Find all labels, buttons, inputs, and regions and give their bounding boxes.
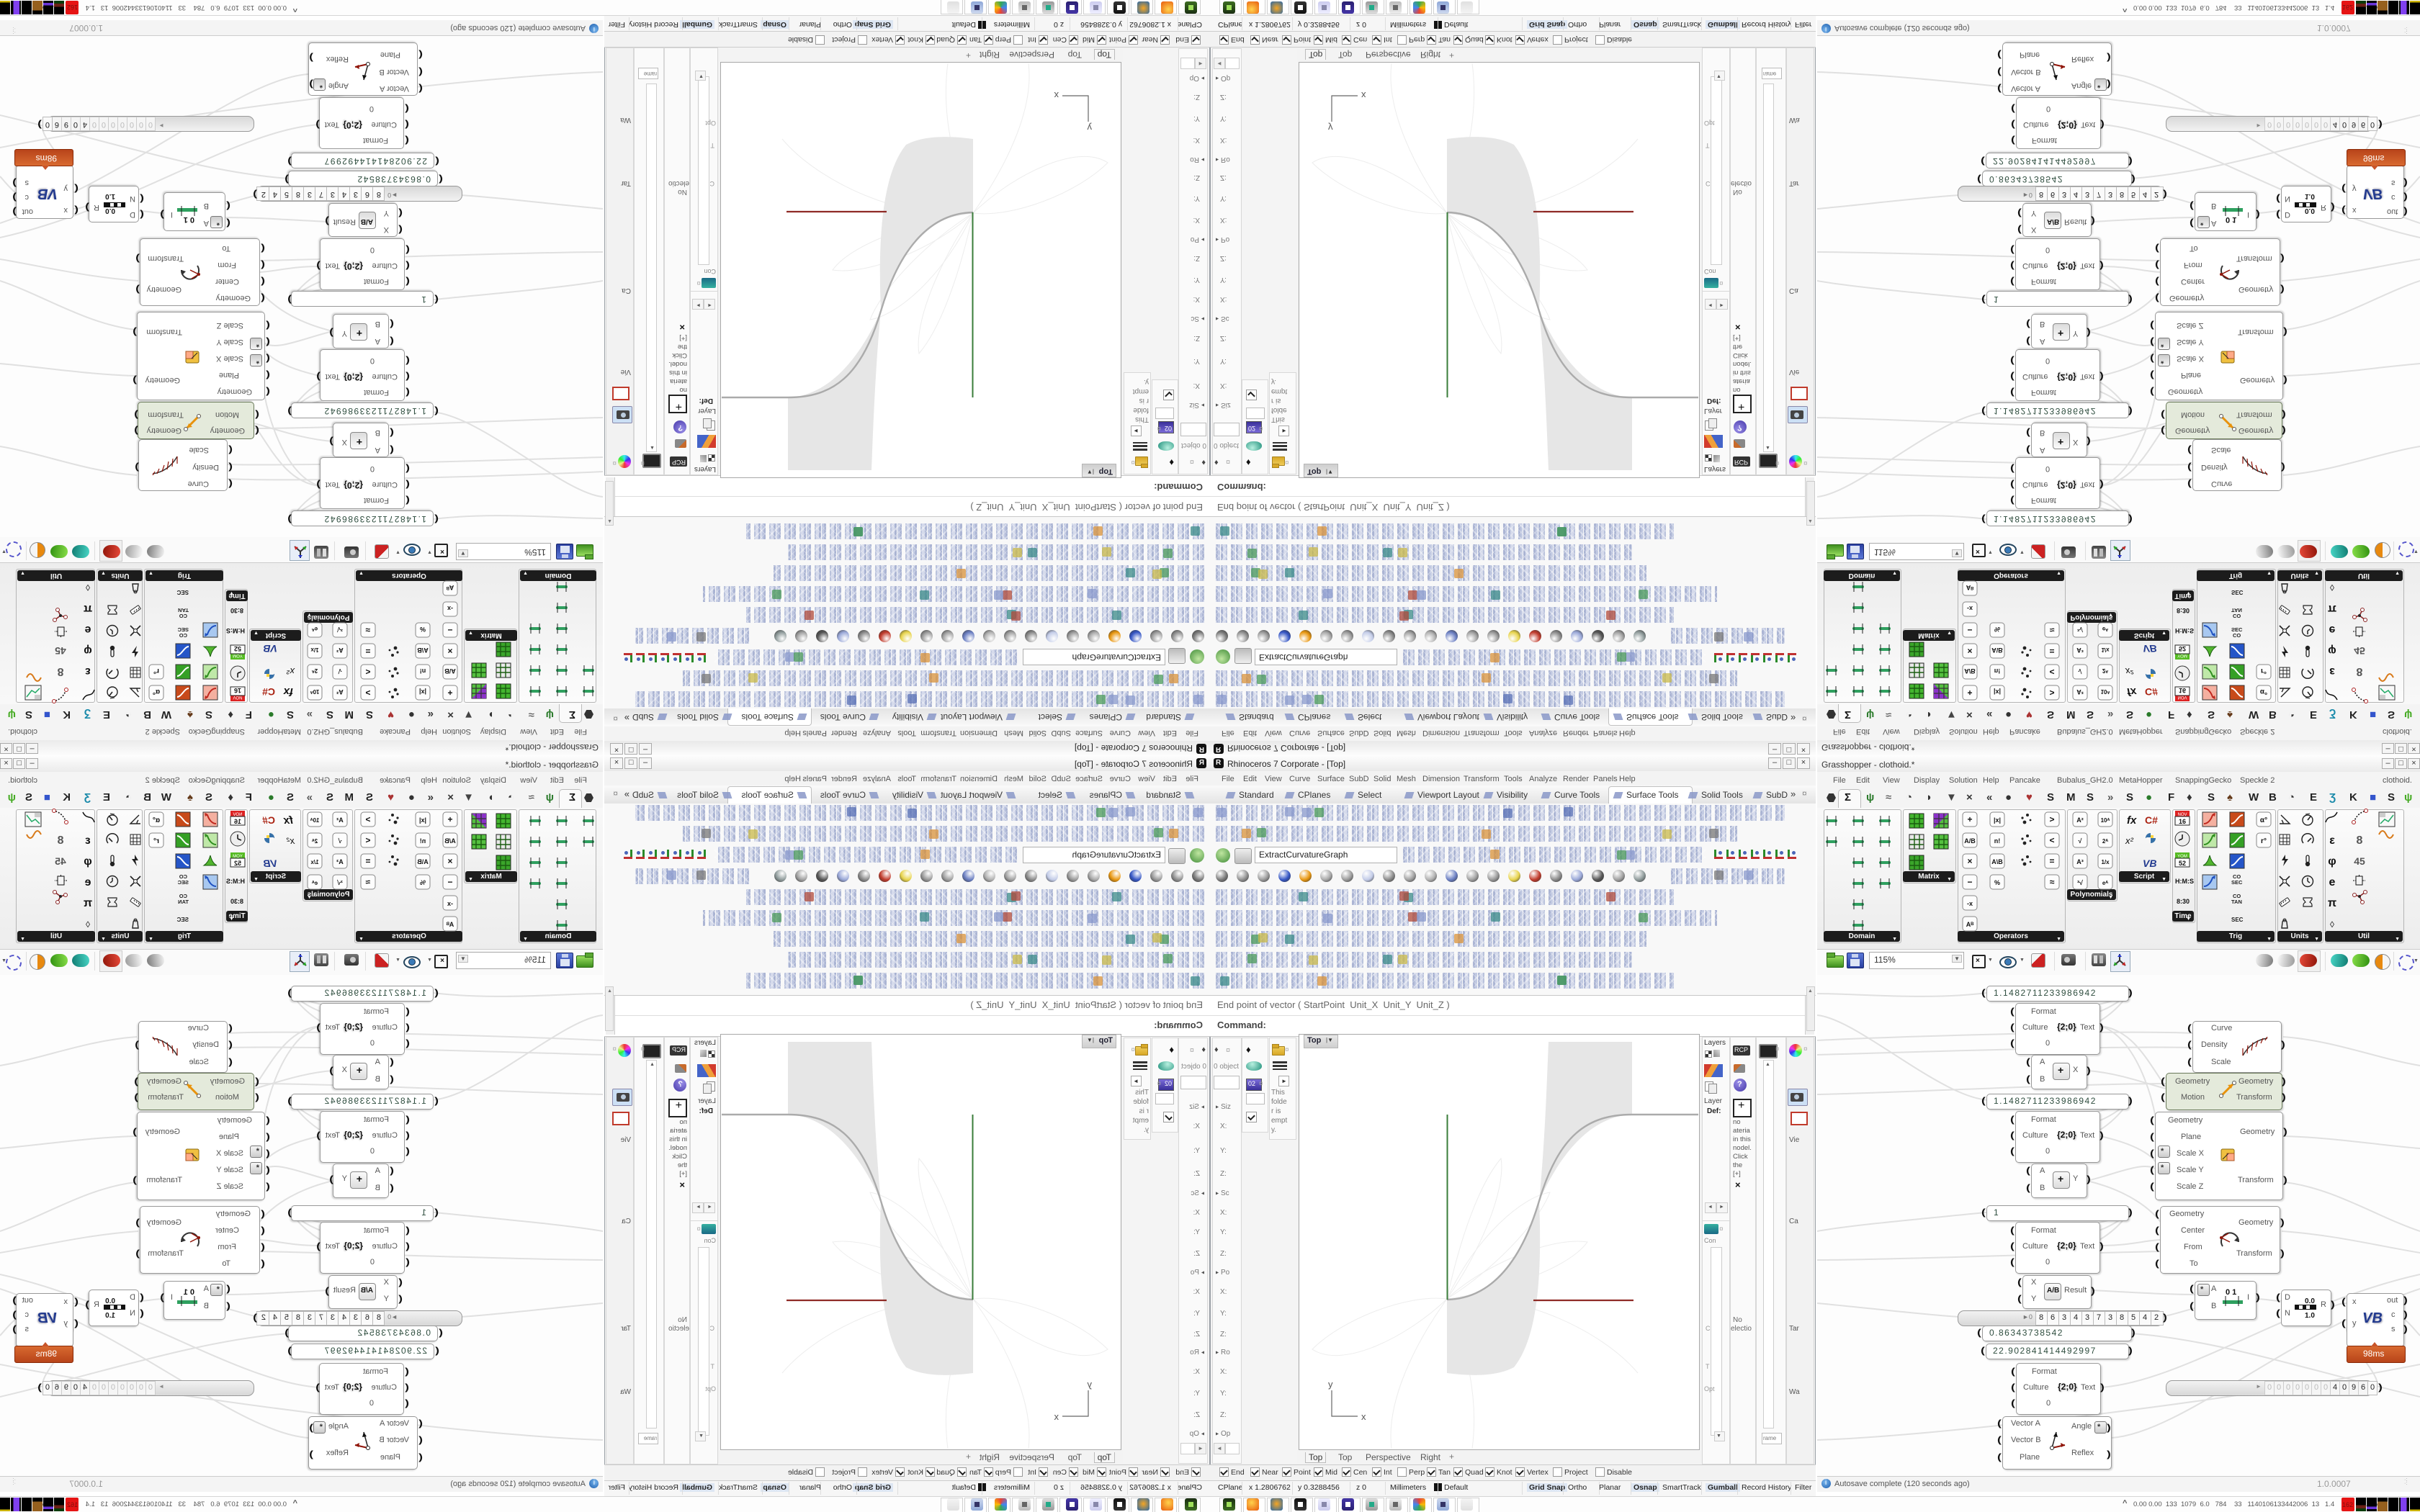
svg-text:ε: ε bbox=[85, 834, 91, 847]
svg-text:8: 8 bbox=[57, 834, 63, 847]
svg-text:eᴬ: eᴬ bbox=[312, 880, 318, 886]
svg-text:x²: x² bbox=[287, 666, 296, 677]
svg-text:1.0: 1.0 bbox=[2305, 1312, 2315, 1319]
svg-text:52: 52 bbox=[2179, 860, 2186, 867]
svg-text:0.0: 0.0 bbox=[2305, 1297, 2315, 1305]
svg-text:◊: ◊ bbox=[86, 919, 90, 930]
svg-text:=: = bbox=[365, 646, 370, 656]
svg-text:A²: A² bbox=[336, 688, 344, 696]
svg-text:10ᴬ: 10ᴬ bbox=[2101, 688, 2110, 695]
svg-text:<: < bbox=[2049, 835, 2054, 845]
svg-text:Aᴮ: Aᴮ bbox=[447, 584, 454, 591]
svg-text:YOM: YOM bbox=[2177, 653, 2187, 657]
svg-text:×: × bbox=[447, 646, 452, 656]
svg-text:1/x: 1/x bbox=[310, 647, 319, 653]
svg-text:ε: ε bbox=[2329, 665, 2335, 678]
svg-text:x: x bbox=[1361, 1411, 1366, 1422]
svg-text:√: √ bbox=[2079, 667, 2082, 675]
svg-text:eᴬ: eᴬ bbox=[2102, 626, 2108, 632]
svg-text:√: √ bbox=[338, 667, 341, 675]
svg-text:TAN: TAN bbox=[2231, 607, 2242, 613]
svg-text:NOV: NOV bbox=[2177, 813, 2187, 817]
svg-text:n!: n! bbox=[1994, 667, 2001, 675]
svg-text:A\B: A\B bbox=[417, 647, 429, 654]
svg-text:SEC: SEC bbox=[2231, 589, 2244, 595]
svg-text:fx: fx bbox=[283, 814, 293, 827]
svg-text:H:M:S: H:M:S bbox=[226, 627, 245, 634]
svg-text:φ: φ bbox=[84, 855, 91, 868]
svg-text:16: 16 bbox=[2179, 818, 2186, 825]
svg-text:TAN: TAN bbox=[2231, 899, 2242, 905]
svg-text:A³: A³ bbox=[2076, 647, 2084, 654]
svg-text:C#: C# bbox=[262, 686, 275, 698]
svg-text:=: = bbox=[365, 856, 370, 866]
svg-text:10ᴬ: 10ᴬ bbox=[2101, 817, 2110, 824]
svg-text:0.0: 0.0 bbox=[2305, 207, 2315, 215]
svg-text:SEC: SEC bbox=[177, 879, 189, 886]
svg-text:n!: n! bbox=[420, 837, 426, 845]
svg-text:×: × bbox=[1967, 646, 1972, 656]
svg-text:8:30: 8:30 bbox=[2177, 898, 2190, 905]
svg-text:π: π bbox=[84, 897, 92, 909]
svg-text:VB: VB bbox=[2143, 858, 2156, 869]
svg-text:H:M:S: H:M:S bbox=[2175, 878, 2194, 885]
svg-text:−: − bbox=[1967, 625, 1972, 635]
svg-text:8: 8 bbox=[57, 665, 63, 678]
svg-text:³√: ³√ bbox=[337, 879, 343, 886]
svg-text:A²: A² bbox=[2076, 688, 2084, 696]
svg-text:2ᴬ: 2ᴬ bbox=[312, 667, 318, 674]
svg-text:8:30: 8:30 bbox=[230, 898, 243, 905]
svg-text:52: 52 bbox=[234, 860, 241, 867]
svg-text:%: % bbox=[420, 626, 426, 633]
svg-text:52: 52 bbox=[2179, 645, 2186, 652]
svg-text:VB: VB bbox=[2143, 643, 2156, 654]
svg-text:y: y bbox=[1087, 122, 1092, 133]
svg-text:SEC: SEC bbox=[176, 589, 189, 595]
svg-text:16: 16 bbox=[234, 687, 241, 694]
svg-text:eᴬ: eᴬ bbox=[2102, 880, 2108, 886]
svg-text:³√: ³√ bbox=[2077, 626, 2083, 633]
svg-text:NOV: NOV bbox=[2177, 695, 2187, 699]
svg-text:1/x: 1/x bbox=[2101, 859, 2110, 865]
svg-text:45: 45 bbox=[55, 855, 66, 867]
svg-text:ε: ε bbox=[85, 665, 91, 678]
svg-text:r°: r° bbox=[153, 837, 159, 845]
svg-text:H:M:S: H:M:S bbox=[2175, 627, 2194, 634]
svg-text:C#: C# bbox=[2145, 686, 2158, 698]
svg-text:+: + bbox=[1967, 814, 1972, 824]
svg-text:52: 52 bbox=[234, 645, 241, 652]
svg-text:2ᴬ: 2ᴬ bbox=[2102, 667, 2108, 674]
svg-text:SEC: SEC bbox=[2231, 917, 2244, 923]
svg-text:=: = bbox=[2049, 646, 2054, 656]
svg-text:0.0: 0.0 bbox=[105, 207, 115, 215]
svg-text:e: e bbox=[2329, 624, 2336, 636]
svg-text:-x: -x bbox=[447, 900, 453, 907]
svg-text:45: 45 bbox=[55, 645, 66, 657]
svg-text:|x|: |x| bbox=[419, 688, 426, 696]
svg-text:TAN: TAN bbox=[178, 899, 189, 905]
svg-text:◊: ◊ bbox=[86, 582, 90, 593]
svg-text:n!: n! bbox=[1994, 837, 2001, 845]
svg-text:YOM: YOM bbox=[233, 855, 243, 859]
svg-text:A²: A² bbox=[336, 816, 344, 824]
svg-text:0 1: 0 1 bbox=[184, 1288, 194, 1297]
svg-text:r°: r° bbox=[153, 667, 159, 675]
svg-text:16: 16 bbox=[234, 818, 241, 825]
svg-text:Aᴮ: Aᴮ bbox=[1966, 921, 1974, 928]
svg-text:-x: -x bbox=[1967, 605, 1973, 612]
svg-text:+: + bbox=[447, 814, 452, 824]
svg-text:2ᴬ: 2ᴬ bbox=[2102, 838, 2108, 845]
svg-text:|x|: |x| bbox=[1994, 688, 2001, 696]
svg-text:√: √ bbox=[338, 837, 341, 845]
svg-text:1.0: 1.0 bbox=[105, 193, 115, 200]
svg-text:π: π bbox=[2328, 603, 2336, 615]
svg-text:8: 8 bbox=[2357, 665, 2363, 678]
svg-text:CO: CO bbox=[179, 613, 187, 619]
svg-text:x: x bbox=[1361, 90, 1366, 101]
svg-text:φ: φ bbox=[2328, 644, 2336, 657]
svg-text:r°: r° bbox=[2261, 837, 2267, 845]
svg-text:y: y bbox=[1328, 1379, 1333, 1390]
svg-text:x: x bbox=[1054, 90, 1059, 101]
svg-text:1/x: 1/x bbox=[2101, 647, 2110, 653]
svg-text:³√: ³√ bbox=[2077, 879, 2083, 886]
svg-text:1.0: 1.0 bbox=[105, 1312, 115, 1319]
svg-text:SEC: SEC bbox=[2231, 879, 2243, 886]
svg-text:A³: A³ bbox=[2076, 858, 2084, 865]
svg-text:SEC: SEC bbox=[176, 917, 189, 923]
svg-text:<: < bbox=[2049, 667, 2054, 677]
svg-text:≈: ≈ bbox=[365, 625, 370, 635]
svg-text:≈: ≈ bbox=[2050, 877, 2055, 887]
svg-text:CO: CO bbox=[2233, 632, 2241, 639]
svg-text:0 1: 0 1 bbox=[184, 215, 194, 224]
svg-text:|x|: |x| bbox=[1994, 816, 2001, 824]
svg-text:YOM: YOM bbox=[2177, 855, 2187, 859]
svg-text:ε: ε bbox=[2329, 834, 2335, 847]
svg-text:1.0: 1.0 bbox=[2305, 193, 2315, 200]
svg-text:A³: A³ bbox=[336, 858, 344, 865]
svg-text:C#: C# bbox=[262, 814, 275, 826]
svg-text:0 1: 0 1 bbox=[2226, 215, 2236, 224]
svg-text:SEC: SEC bbox=[177, 626, 189, 633]
svg-text:fx: fx bbox=[283, 685, 293, 698]
svg-text:0.0: 0.0 bbox=[105, 1297, 115, 1305]
svg-text:≈: ≈ bbox=[365, 877, 370, 887]
svg-text:−: − bbox=[447, 877, 452, 887]
svg-text:Aᴮ: Aᴮ bbox=[1966, 584, 1974, 591]
svg-text:|x|: |x| bbox=[419, 816, 426, 824]
svg-text:8:30: 8:30 bbox=[2177, 607, 2190, 614]
svg-text:√: √ bbox=[2079, 837, 2082, 845]
svg-text:1/x: 1/x bbox=[310, 859, 319, 865]
svg-text:10ᴬ: 10ᴬ bbox=[310, 688, 320, 695]
svg-text:α°: α° bbox=[2260, 816, 2267, 824]
svg-text:2ᴬ: 2ᴬ bbox=[312, 838, 318, 845]
svg-text:>: > bbox=[365, 814, 370, 824]
svg-text:π: π bbox=[84, 603, 92, 615]
svg-text:>: > bbox=[2049, 814, 2054, 824]
svg-text:x²: x² bbox=[2125, 835, 2134, 846]
svg-text:CO: CO bbox=[179, 632, 187, 639]
svg-text:-x: -x bbox=[447, 605, 453, 612]
svg-text:A\B: A\B bbox=[417, 858, 429, 865]
svg-text:A\B: A\B bbox=[1991, 647, 2003, 654]
svg-text:A/B: A/B bbox=[1964, 837, 1976, 845]
svg-text:A/B: A/B bbox=[1964, 667, 1976, 675]
svg-text:Aᴮ: Aᴮ bbox=[447, 921, 454, 928]
svg-text:H:M:S: H:M:S bbox=[226, 878, 245, 885]
svg-text:fx: fx bbox=[2127, 685, 2137, 698]
svg-text:×: × bbox=[1967, 856, 1972, 866]
svg-text:+: + bbox=[447, 688, 452, 698]
svg-text:³√: ³√ bbox=[337, 626, 343, 633]
svg-text:CO: CO bbox=[2233, 613, 2241, 619]
svg-text:NOV: NOV bbox=[233, 813, 242, 817]
svg-text:NOV: NOV bbox=[233, 695, 242, 699]
svg-text:x: x bbox=[1054, 1411, 1059, 1422]
svg-text:16: 16 bbox=[2179, 687, 2186, 694]
svg-text:fx: fx bbox=[2127, 814, 2137, 827]
svg-text:eᴬ: eᴬ bbox=[312, 626, 318, 632]
svg-text:=: = bbox=[2049, 856, 2054, 866]
svg-text:π: π bbox=[2328, 897, 2336, 909]
svg-text:SEC: SEC bbox=[2231, 626, 2243, 633]
svg-text:A³: A³ bbox=[336, 647, 344, 654]
svg-text:◊: ◊ bbox=[2330, 919, 2334, 930]
svg-text:45: 45 bbox=[2354, 645, 2365, 657]
svg-text:10ᴬ: 10ᴬ bbox=[310, 817, 320, 824]
svg-text:e: e bbox=[84, 876, 91, 888]
svg-text:e: e bbox=[2329, 876, 2336, 888]
svg-text:≈: ≈ bbox=[2050, 625, 2055, 635]
svg-text:×: × bbox=[447, 856, 452, 866]
svg-text:A/B: A/B bbox=[444, 837, 456, 845]
svg-text:α°: α° bbox=[153, 688, 160, 696]
svg-text:-x: -x bbox=[1967, 900, 1973, 907]
svg-text:◊: ◊ bbox=[2330, 582, 2334, 593]
svg-text:y: y bbox=[1087, 1379, 1092, 1390]
svg-text:0 1: 0 1 bbox=[2226, 1288, 2236, 1297]
svg-text:y: y bbox=[1328, 122, 1333, 133]
svg-text:45: 45 bbox=[2354, 855, 2365, 867]
svg-text:−: − bbox=[447, 625, 452, 635]
svg-text:TAN: TAN bbox=[178, 607, 189, 613]
svg-text:φ: φ bbox=[84, 644, 91, 657]
svg-text:n!: n! bbox=[420, 667, 426, 675]
svg-text:C#: C# bbox=[2145, 814, 2158, 826]
svg-text:α°: α° bbox=[2260, 688, 2267, 696]
svg-text:r°: r° bbox=[2261, 667, 2267, 675]
svg-text:%: % bbox=[1994, 879, 2000, 886]
svg-text:8:30: 8:30 bbox=[230, 607, 243, 614]
svg-text:8: 8 bbox=[2357, 834, 2363, 847]
svg-text:x²: x² bbox=[2125, 666, 2134, 677]
svg-text:φ: φ bbox=[2328, 855, 2336, 868]
svg-text:VB: VB bbox=[264, 643, 277, 654]
svg-text:>: > bbox=[2049, 688, 2054, 698]
svg-text:A²: A² bbox=[2076, 816, 2084, 824]
svg-text:%: % bbox=[1994, 626, 2000, 633]
svg-text:YOM: YOM bbox=[233, 653, 243, 657]
svg-text:%: % bbox=[420, 879, 426, 886]
svg-text:>: > bbox=[365, 688, 370, 698]
svg-text:e: e bbox=[84, 624, 91, 636]
svg-text:A\B: A\B bbox=[1991, 858, 2003, 865]
svg-text:α°: α° bbox=[153, 816, 160, 824]
svg-text:+: + bbox=[1967, 688, 1972, 698]
svg-text:x²: x² bbox=[287, 835, 296, 846]
svg-text:−: − bbox=[1967, 877, 1972, 887]
svg-text:A/B: A/B bbox=[444, 667, 456, 675]
svg-text:<: < bbox=[365, 667, 370, 677]
svg-text:<: < bbox=[365, 835, 370, 845]
svg-text:VB: VB bbox=[264, 858, 277, 869]
